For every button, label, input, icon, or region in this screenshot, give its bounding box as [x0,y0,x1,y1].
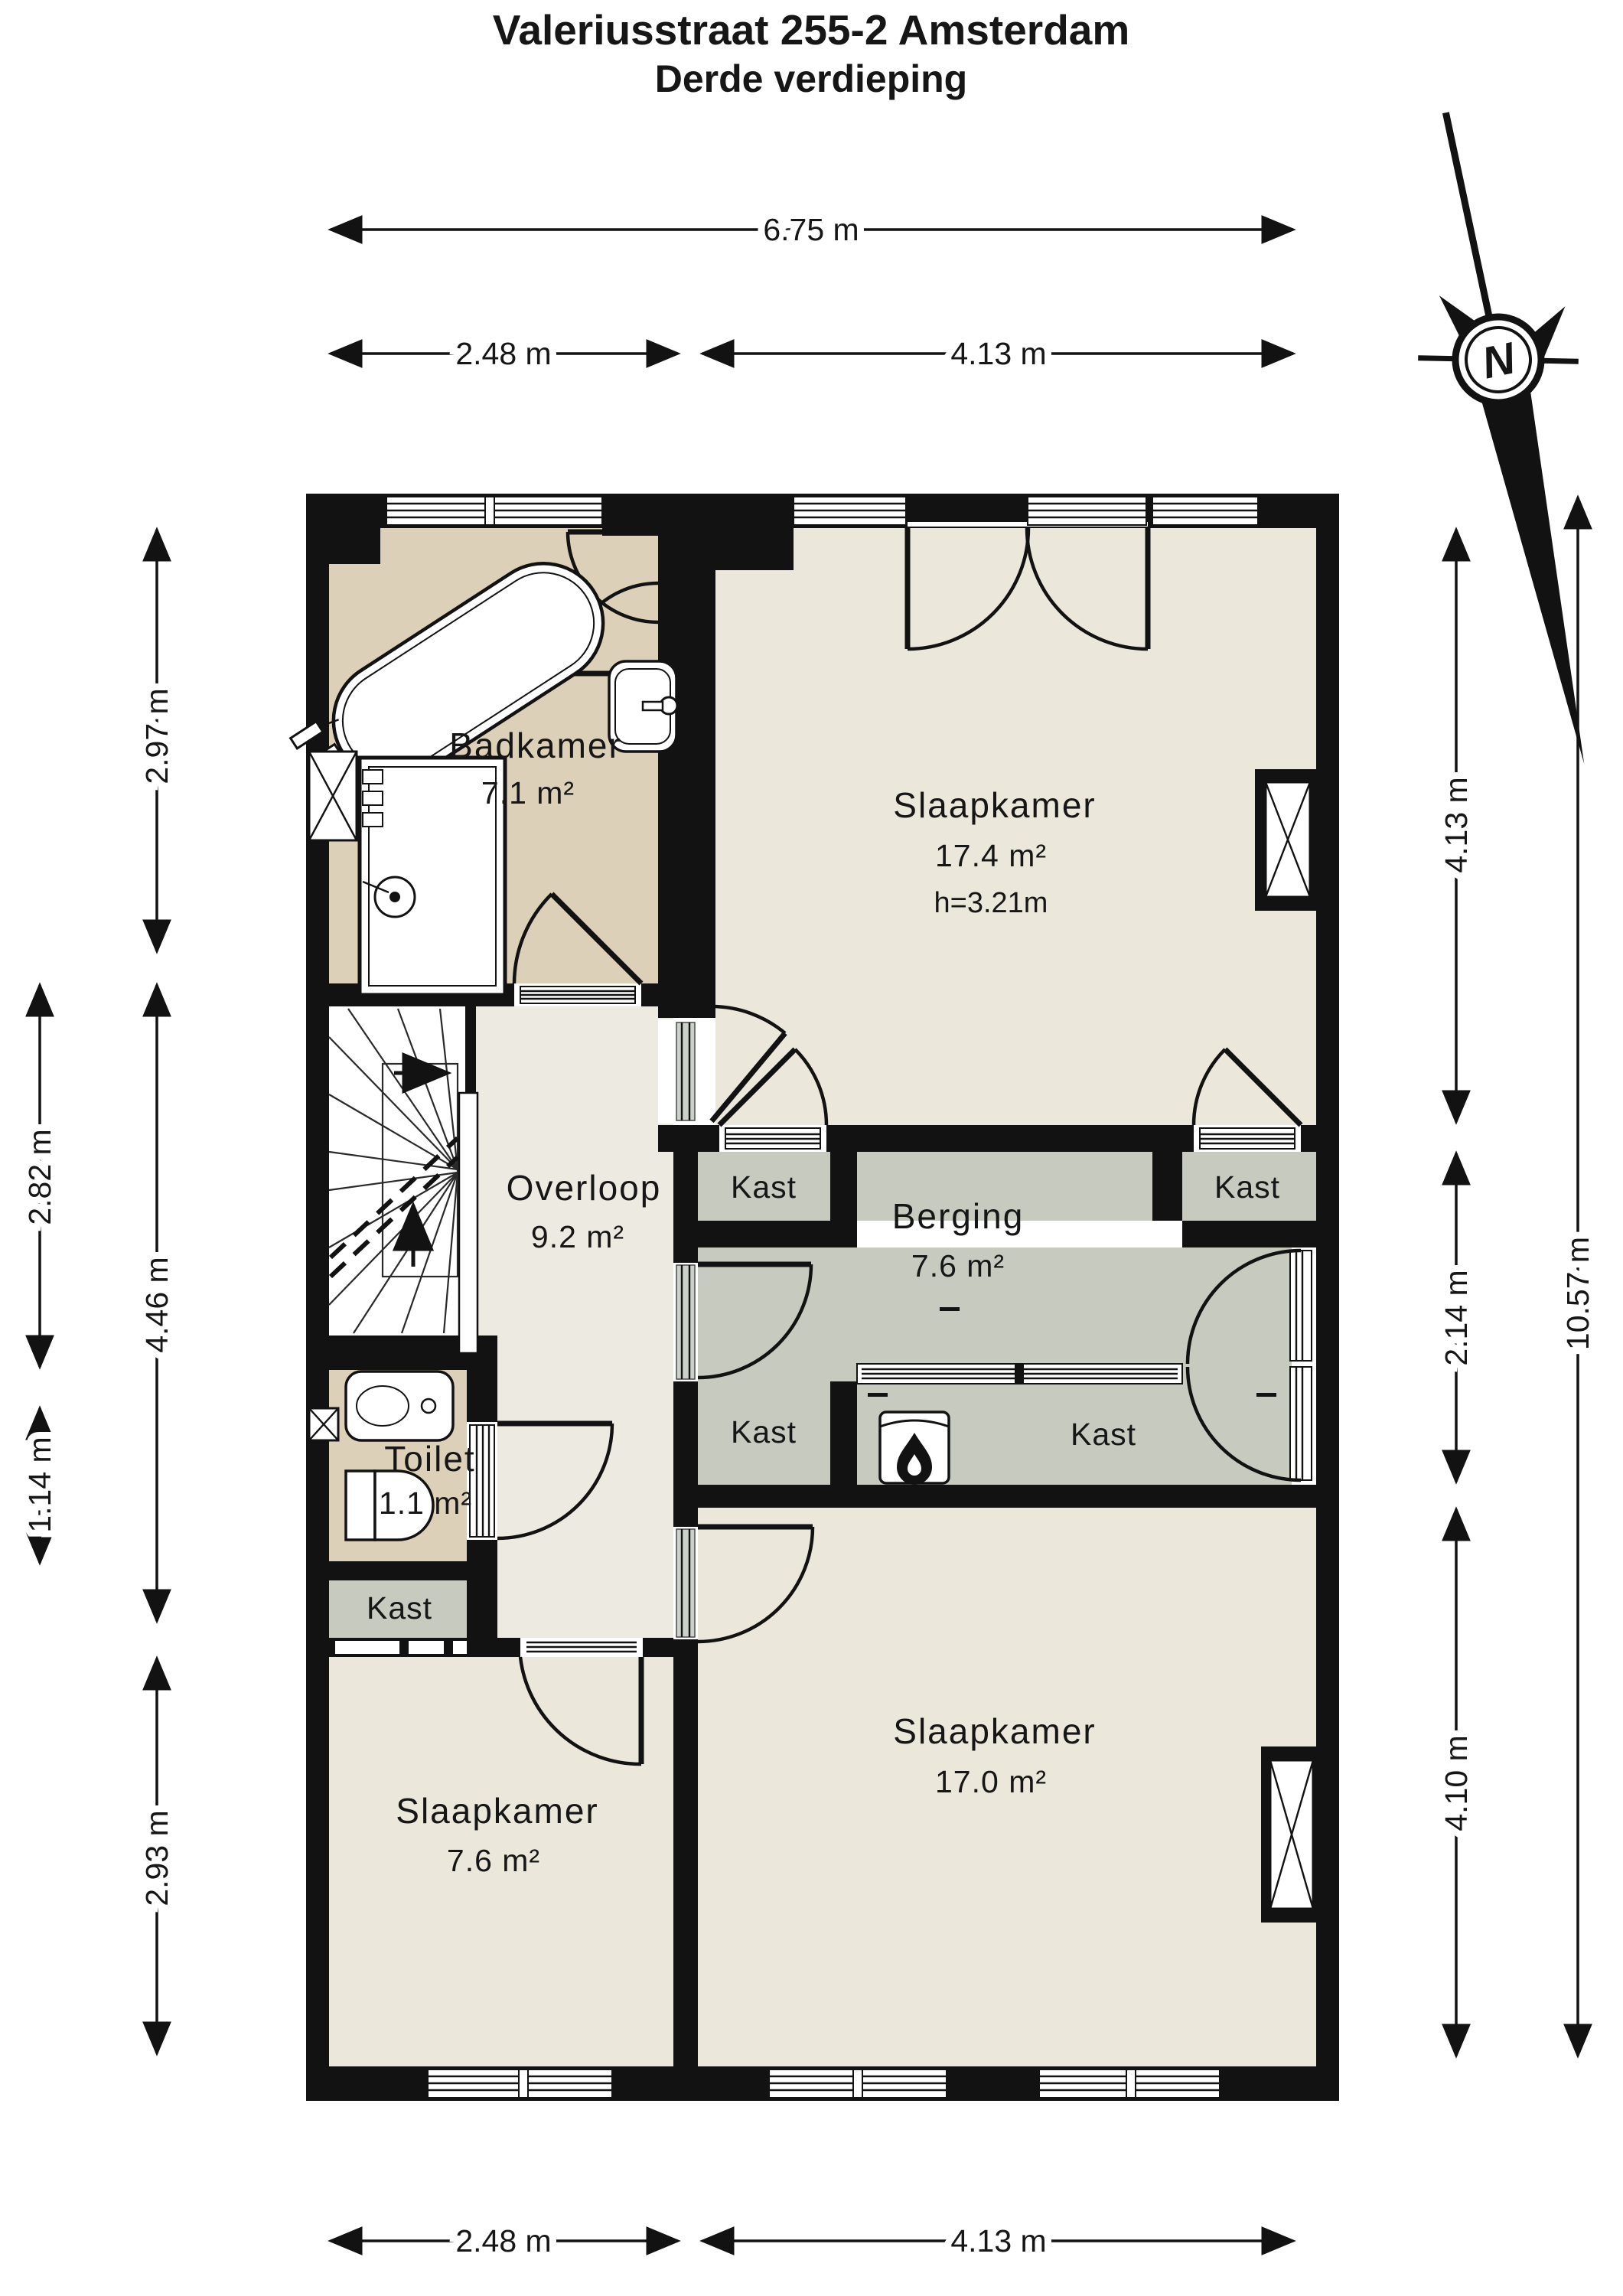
dim-left-outer-top: 2.82 m [22,1129,57,1225]
berging-nook-floor [1182,1381,1292,1485]
wall-right [1316,494,1339,2101]
wall-kast-divider-1 [830,1152,857,1221]
kast-lower-left-label: Kast [731,1414,797,1450]
dim-left-inner-bottom: 2.93 m [139,1810,174,1906]
dim-right-outer-total: 10.57 m [1560,1237,1595,1350]
wall-toilet-kast [329,1561,467,1580]
kast-under-toilet-label: Kast [367,1590,432,1626]
dim-top-left: 2.48 m [455,336,551,371]
dim-bottom-left: 2.48 m [455,2223,551,2258]
window-bottom-1 [428,2069,612,2098]
kast-main-label: Kast [1071,1417,1136,1452]
dim-bottom-right: 4.13 m [950,2223,1046,2258]
slaapkamer-top-floor [715,528,1316,1125]
slaapkamer-left-name: Slaapkamer [396,1791,598,1831]
slaapkamer-top-height: h=3.21m [934,887,1048,919]
tick-dash [868,1393,888,1397]
berging-east-door-leaves [1290,1251,1312,1480]
dim-top-right: 4.13 m [950,336,1046,371]
window-mullion [1126,2069,1136,2098]
window-mullion [853,2069,862,2098]
dim-left-outer-bottom: 1.14 m [22,1437,57,1532]
sink-tap-icon [422,1399,435,1413]
badkamer-area: 7.1 m² [481,775,575,810]
kast-top-left-label: Kast [731,1169,797,1205]
threshold-badkamer-south [514,983,641,1006]
overloop-area: 9.2 m² [531,1219,624,1254]
window-top-4 [1152,497,1258,525]
threshold-kast-right [1194,1125,1301,1152]
dim-left-inner-mid: 4.46 m [139,1257,174,1352]
window-top-3 [1028,497,1146,525]
floorplan-page: Valeriusstraat 255-2 Amsterdam Derde ver… [0,0,1623,2296]
flue-box-top-right [1266,782,1310,897]
wall-under-kast-left [698,1221,857,1247]
opening-overloop-slaapkamer [658,1019,715,1124]
title-line-1: Valeriusstraat 255-2 Amsterdam [493,6,1130,54]
window-mullion [519,2069,528,2098]
toilet-sink [346,1371,453,1440]
shaft-box-toilet [309,1408,338,1440]
opening-slaapkamer-right [673,1527,698,1639]
toilet-name: Toilet [384,1439,475,1479]
toilet-area: 1.1 m² [379,1486,472,1521]
title-line-2: Derde verdieping [655,57,967,100]
slaapkamer-right-name: Slaapkamer [893,1711,1096,1751]
overloop-floor [476,1006,673,1638]
slaapkamer-left-area: 7.6 m² [447,1843,540,1878]
slaapkamer-top-area: 17.4 m² [935,838,1047,873]
compass-tail [1480,386,1608,769]
berging-area: 7.6 m² [911,1248,1005,1283]
dim-right-inner-bottom: 4.10 m [1439,1735,1474,1831]
window-mullion [485,497,494,525]
boiler [880,1412,949,1485]
tick-dash [940,1307,960,1311]
wall-bedroomleft-east [673,1639,698,2066]
wall-under-kast-right [1182,1221,1316,1247]
wall-kast-lower-divider [830,1381,857,1485]
flue-box-bottom-right [1270,1760,1313,1909]
threshold-kast-left [719,1125,826,1152]
opening-berging-west [673,1263,698,1381]
overloop-name: Overloop [507,1168,662,1208]
window-bottom-3 [1039,2069,1220,2098]
opening-slaapkamer-left [520,1638,643,1657]
slaapkamer-right-area: 17.0 m² [935,1764,1047,1799]
tick-dash [1256,1393,1276,1397]
sliding-door-kast-main [857,1364,1182,1384]
wall-corner-notch [306,494,380,564]
page-title: Valeriusstraat 255-2 Amsterdam Derde ver… [493,6,1130,100]
compass-north: N [1370,96,1623,780]
dim-top-total: 6.75 m [763,212,859,247]
window-top-1 [386,497,602,525]
floorplan-drawing: Valeriusstraat 255-2 Amsterdam Derde ver… [0,0,1623,2296]
badkamer-name: Badkamer [449,726,622,765]
dim-right-inner-top: 4.13 m [1439,777,1474,872]
wall-kast-divider-2 [1152,1152,1182,1221]
kast-top-right-label: Kast [1214,1169,1280,1205]
compass-needle-line [1445,113,1490,322]
wall-storage-south [673,1485,1316,1508]
window-bottom-2 [769,2069,947,2098]
dim-left-inner-top: 2.97 m [139,688,174,784]
window-top-2 [794,497,906,525]
slaapkamer-top-name: Slaapkamer [893,785,1096,825]
berging-name: Berging [892,1196,1025,1236]
shaft-box-badkamer [309,752,357,840]
stair-railing [459,1093,477,1353]
dim-right-inner-mid: 2.14 m [1439,1270,1474,1365]
